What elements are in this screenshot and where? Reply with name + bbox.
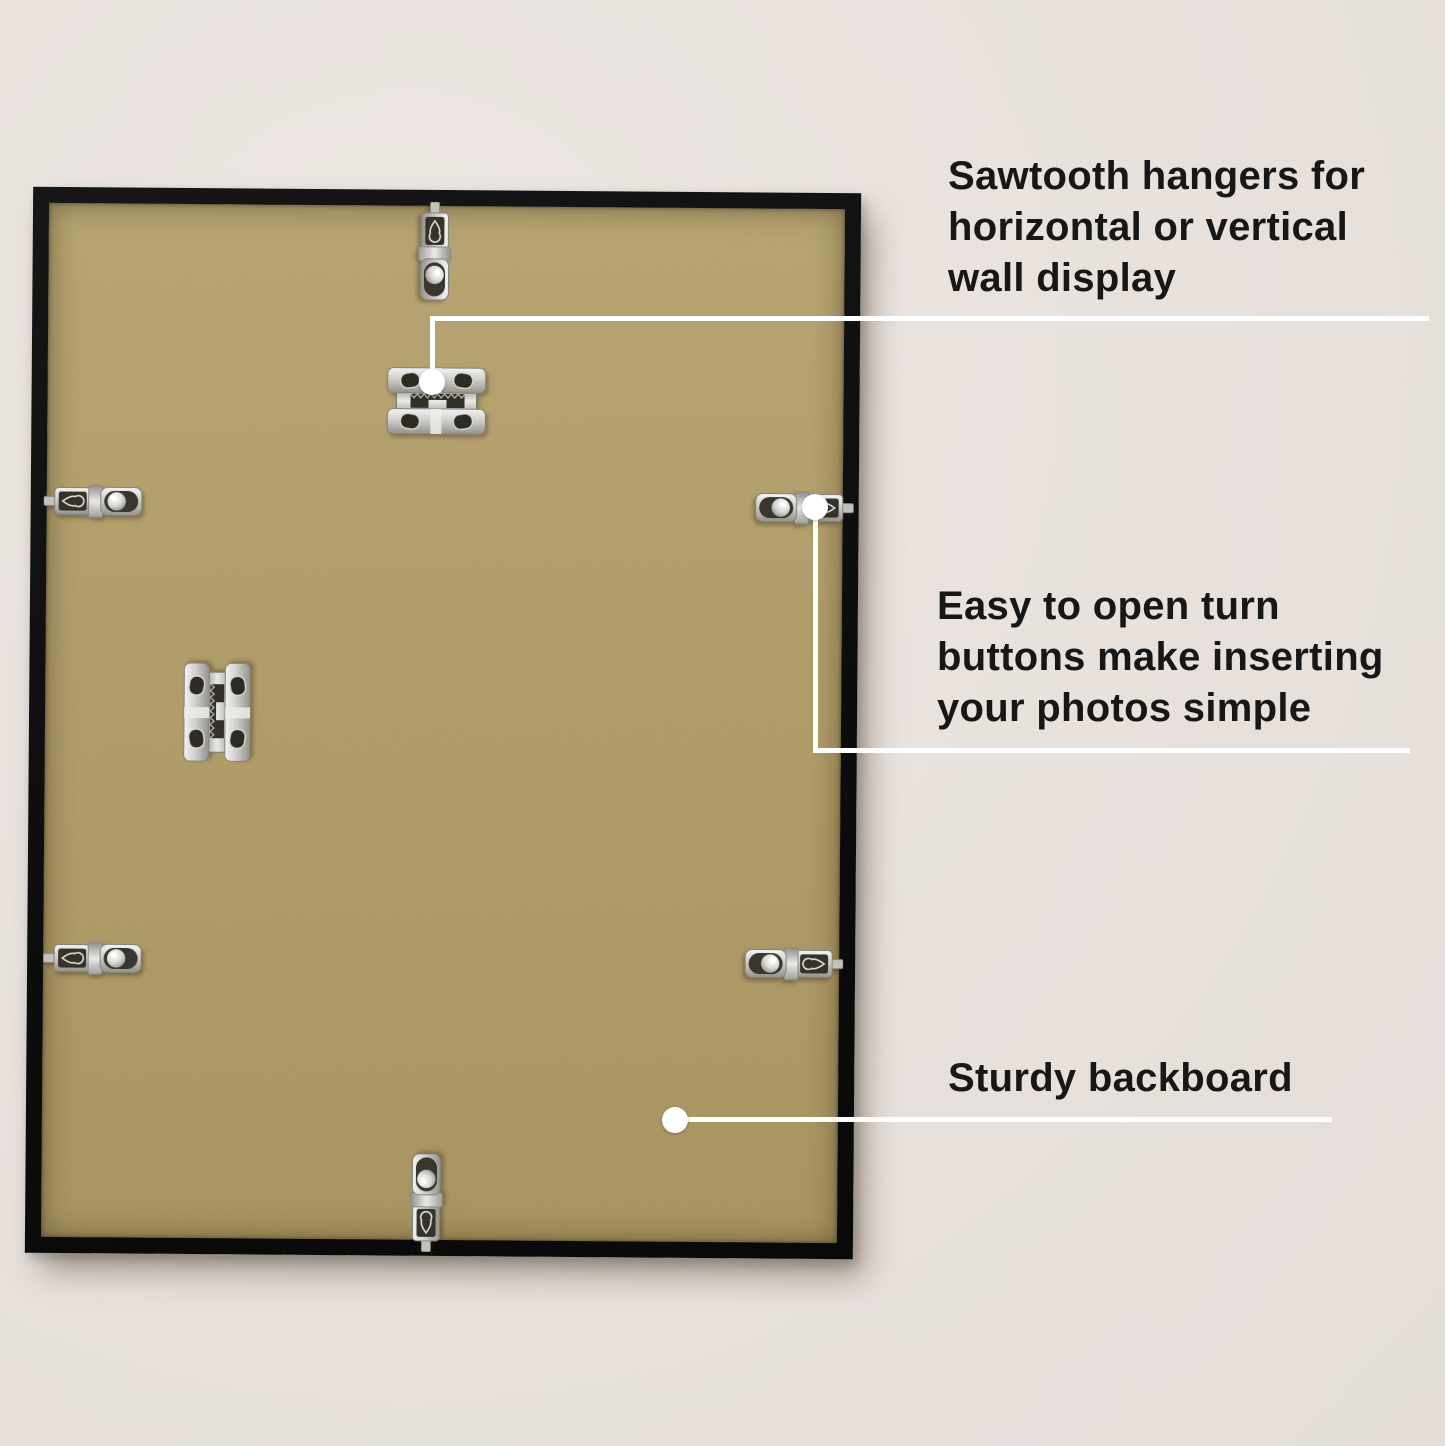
annotation-line: your photos simple <box>937 683 1384 734</box>
turn-button-icon <box>743 946 843 981</box>
callout-line <box>675 1117 1332 1122</box>
turn-button-icon <box>43 941 143 976</box>
annotation-line: Sturdy backboard <box>948 1053 1293 1104</box>
picture-frame-back <box>25 187 861 1259</box>
turn-button-icon <box>417 202 452 302</box>
annotation-line: horizontal or vertical <box>948 202 1365 253</box>
turn-button-icon <box>409 1152 444 1252</box>
annotation-turn-buttons: Easy to open turn buttons make inserting… <box>937 581 1384 734</box>
turn-button-icon <box>44 484 144 519</box>
callout-dot <box>802 494 828 520</box>
callout-dot <box>419 369 445 395</box>
callout-line <box>813 748 1410 753</box>
mounting-hardware <box>25 187 861 1259</box>
callout-line <box>813 505 818 751</box>
annotation-sturdy-backboard: Sturdy backboard <box>948 1053 1293 1104</box>
annotation-line: Easy to open turn <box>937 581 1384 632</box>
annotation-line: Sawtooth hangers for <box>948 151 1365 202</box>
sawtooth-hanger-icon <box>183 656 252 769</box>
callout-dot <box>662 1107 688 1133</box>
callout-line <box>430 316 1429 321</box>
product-photo: Sawtooth hangers for horizontal or verti… <box>0 0 1445 1446</box>
annotation-sawtooth-hangers: Sawtooth hangers for horizontal or verti… <box>948 151 1365 304</box>
annotation-line: buttons make inserting <box>937 632 1384 683</box>
annotation-line: wall display <box>948 253 1365 304</box>
